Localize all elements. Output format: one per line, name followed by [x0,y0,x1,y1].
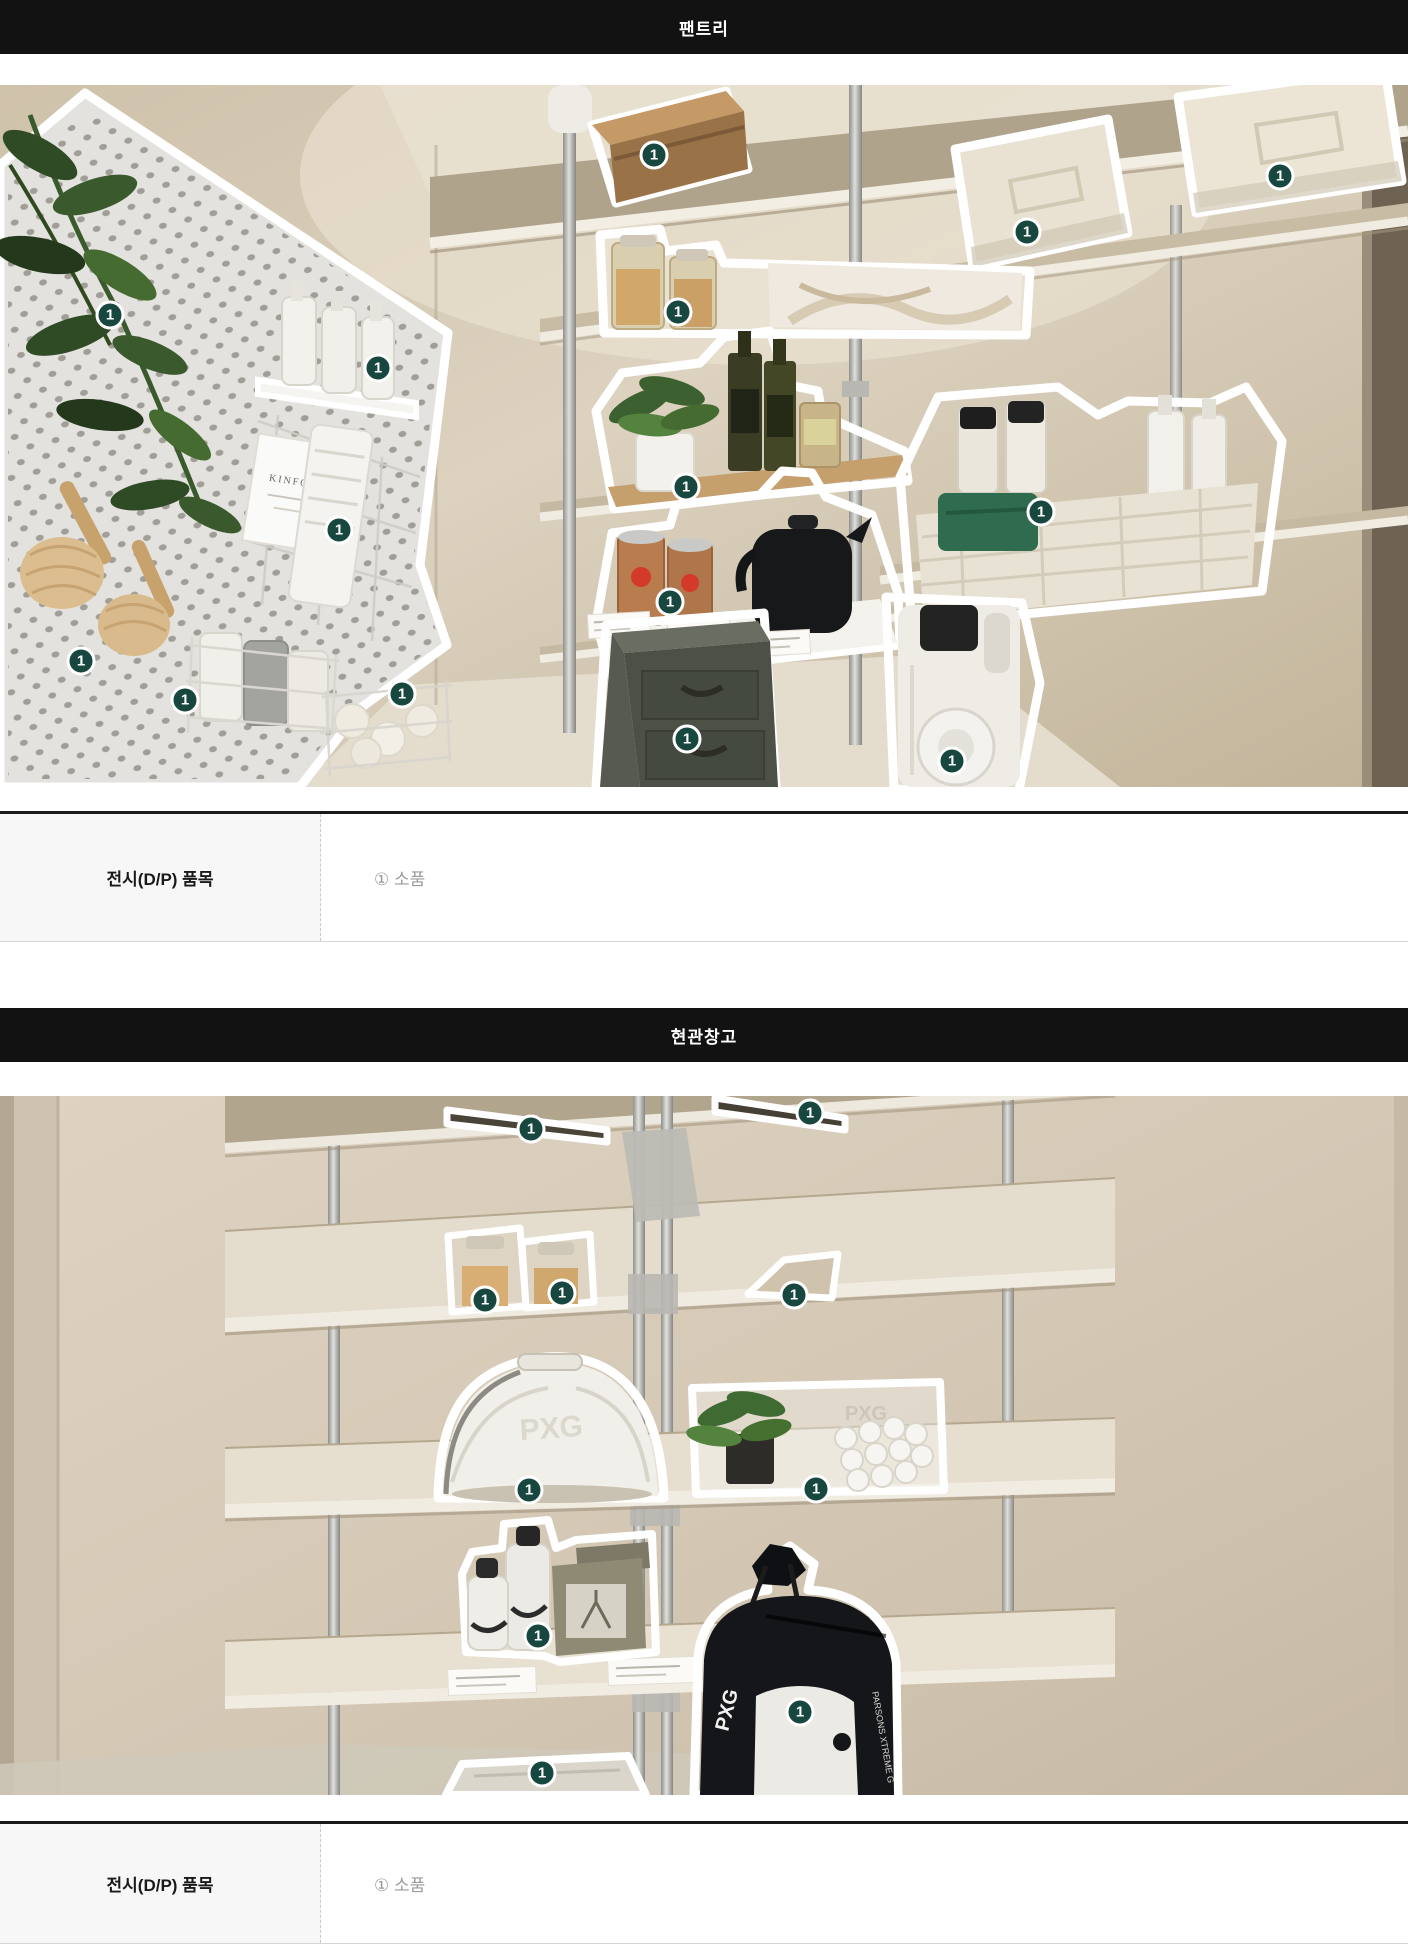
annotation-badge: 1 [471,1286,500,1315]
annotation-badge: 1 [364,354,393,383]
annotation-badge: 1 [515,1476,544,1505]
table-header-cell: 전시(D/P) 품목 [0,814,321,941]
annotation-badge: 1 [938,747,967,776]
annotation-badge: 1 [802,1475,831,1504]
annotation-badge: 1 [171,686,200,715]
annotation-badge: 1 [1013,218,1042,247]
annotation-badge: 1 [548,1279,577,1308]
annotation-badge: 1 [640,141,669,170]
annotation-badge: 1 [796,1099,825,1128]
annotation-badge: 1 [524,1622,553,1651]
annotation-badge: 1 [786,1698,815,1727]
photo-annotations: 111111111111111 [0,85,1408,787]
annotation-badge: 1 [517,1115,546,1144]
table-row-label: 전시(D/P) 품목 [107,1871,214,1896]
annotation-badge: 1 [672,473,701,502]
annotation-badge: 1 [664,298,693,327]
annotation-badge: 1 [325,516,354,545]
annotation-badge: 1 [1266,162,1295,191]
annotation-badge: 1 [673,725,702,754]
table-value-cell: ① 소품 [321,814,1408,941]
section-header-pantry: 팬트리 [0,0,1408,54]
table-row-value: ① 소품 [374,1871,425,1896]
annotation-badge: 1 [1027,498,1056,527]
dp-items-table-pantry: 전시(D/P) 품목 ① 소품 [0,811,1408,942]
table-header-cell: 전시(D/P) 품목 [0,1824,321,1943]
section-header-entry-storage: 현관창고 [0,1008,1408,1062]
table-row-label: 전시(D/P) 품목 [107,865,214,890]
annotation-badge: 1 [780,1281,809,1310]
section-title: 현관창고 [671,1023,738,1048]
table-row-value: ① 소품 [374,865,425,890]
annotation-badge: 1 [96,301,125,330]
entry-storage-photo: PXG PXG [0,1096,1408,1795]
dp-items-table-entry-storage: 전시(D/P) 품목 ① 소품 [0,1821,1408,1944]
annotation-badge: 1 [528,1759,557,1788]
annotation-badge: 1 [67,647,96,676]
annotation-badge: 1 [388,680,417,709]
table-value-cell: ① 소품 [321,1824,1408,1943]
photo-annotations: 1111111111 [0,1096,1408,1795]
pantry-photo: KINFOLK [0,85,1408,787]
report-page: 팬트리 [0,0,1408,1956]
annotation-badge: 1 [656,588,685,617]
section-title: 팬트리 [679,15,729,40]
